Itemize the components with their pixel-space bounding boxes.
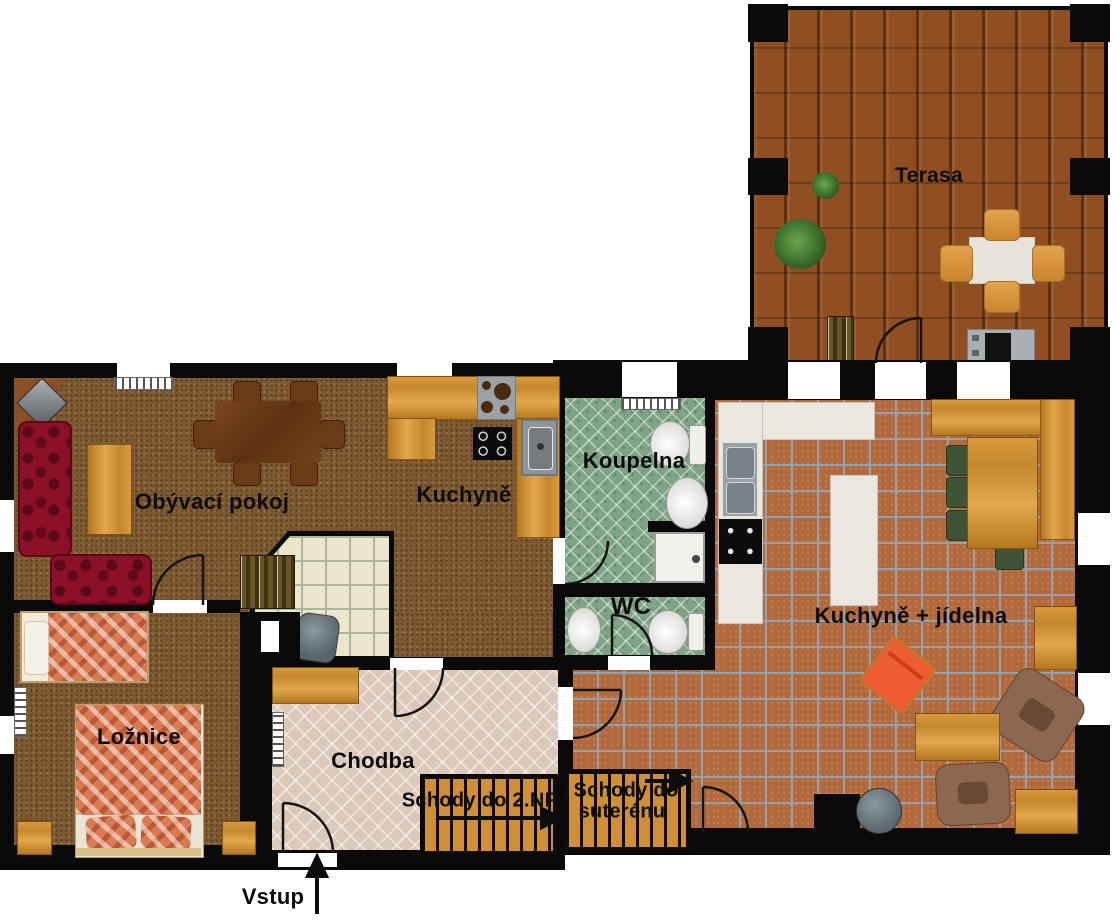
door-arc [565,541,608,584]
stairs-label-upper: Schody do 2.NP [402,790,558,813]
door-and-arrow-overlay [0,0,1116,920]
floor-plan: Terasa Obývací pokoj Kuchyně Koupelna WC… [0,0,1116,920]
door-arc [612,615,652,655]
room-label-chodba: Chodba [331,748,415,774]
room-label-kuchyne-jidelna: Kuchyně + jídelna [815,603,1008,629]
stairs-label-basement-line2: suterénu [579,801,666,824]
room-label-wc: WC [611,593,652,621]
door-arc [153,555,203,605]
door-arc [703,787,748,832]
entrance-label: Vstup [242,884,305,910]
door-arc [573,690,621,738]
room-label-loznice: Ložnice [97,724,181,750]
door-arc [395,668,443,716]
entrance-arrowhead [308,857,326,876]
room-label-terasa: Terasa [895,164,963,188]
stairs-label-basement-line1: Schody do [574,780,679,803]
room-label-kuchyne: Kuchyně [416,482,511,508]
door-arc [283,803,333,853]
door-arc [876,318,921,363]
room-label-koupelna: Koupelna [583,448,686,474]
room-label-obyvaci-pokoj: Obývací pokoj [135,489,289,515]
